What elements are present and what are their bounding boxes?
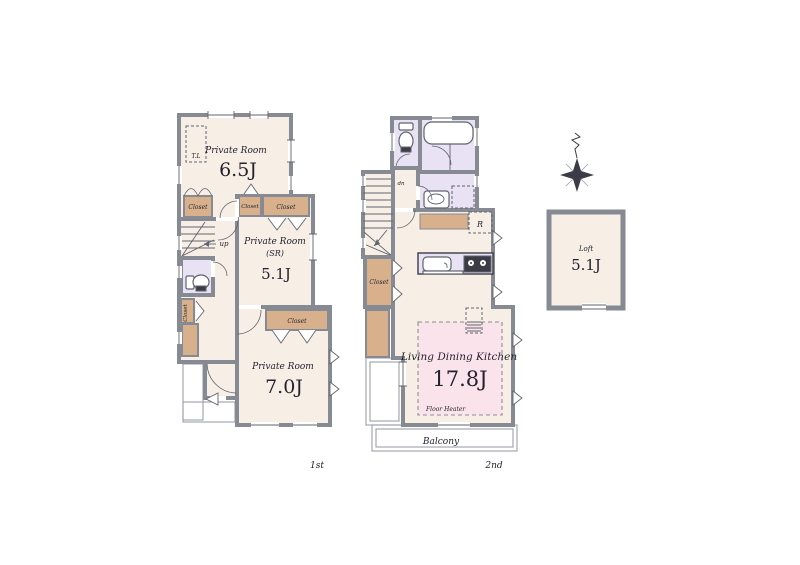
room-7-0j-label: Private Room bbox=[251, 362, 314, 372]
burner-dot bbox=[470, 262, 472, 264]
door-gap bbox=[216, 217, 238, 221]
casement-window-icon bbox=[513, 333, 522, 347]
loft: Loft 5.1J bbox=[549, 212, 623, 312]
door-gap bbox=[239, 305, 261, 309]
stove-icon bbox=[464, 256, 491, 272]
loft-opening bbox=[582, 303, 606, 312]
toilet-door-gap bbox=[211, 261, 215, 277]
balcony-label: Balcony bbox=[422, 437, 460, 447]
refrigerator-label: R bbox=[476, 220, 483, 229]
door-gap bbox=[416, 186, 420, 200]
porch-step bbox=[183, 402, 235, 422]
room-5-1j-label: Private Room bbox=[243, 237, 306, 247]
counter-strip bbox=[423, 271, 463, 274]
balcony-inner bbox=[370, 362, 399, 421]
toilet-tank-icon bbox=[399, 123, 413, 130]
floor-2: Closet dn R Living Dining Kitchen 17.8J … bbox=[360, 115, 522, 471]
casement-window-icon bbox=[493, 285, 502, 299]
room-5-1j-size: 5.1J bbox=[261, 265, 291, 283]
north-compass-icon bbox=[560, 133, 594, 192]
loft-size: 5.1J bbox=[571, 256, 601, 274]
storage-2f bbox=[366, 310, 389, 357]
casement-window-icon bbox=[330, 350, 339, 364]
closet-label: Closet bbox=[183, 303, 189, 321]
bathtub-icon bbox=[424, 122, 473, 144]
closet-label: Closet bbox=[287, 318, 307, 325]
tall-locker-label: T.L bbox=[191, 153, 200, 160]
door-gap bbox=[235, 199, 239, 217]
casement-window-icon bbox=[513, 391, 522, 405]
floor-plan-svg: Private Room 6.5J T.L Closet Closet Clos… bbox=[0, 0, 800, 565]
burner-dot bbox=[482, 262, 484, 264]
floor-heater-label: Floor Heater bbox=[425, 406, 466, 413]
room-6-5j-size: 6.5J bbox=[219, 159, 257, 181]
closet-label: Closet bbox=[276, 204, 296, 211]
porch-outline bbox=[183, 364, 203, 420]
floor-1-caption: 1st bbox=[310, 461, 324, 471]
floor-plan-page: Private Room 6.5J T.L Closet Closet Clos… bbox=[0, 0, 800, 565]
door-gap bbox=[395, 208, 413, 212]
ldk-size: 17.8J bbox=[432, 367, 487, 391]
kitchen-back-counter bbox=[420, 214, 468, 229]
stairs-down-label: dn bbox=[397, 181, 405, 187]
loft-label: Loft bbox=[578, 245, 593, 253]
shoe-cabinet bbox=[182, 324, 198, 356]
floor-2-caption: 2nd bbox=[484, 461, 503, 471]
balcony-outline bbox=[366, 358, 403, 425]
room-6-5j-label: Private Room bbox=[204, 146, 267, 156]
room-5-1j-sub: (SR) bbox=[266, 249, 284, 258]
closet-label: Closet bbox=[369, 279, 389, 286]
hallway-2f bbox=[393, 168, 418, 210]
casement-window-icon bbox=[330, 382, 339, 396]
closet-label: Closet bbox=[188, 204, 208, 211]
ldk-label: Living Dining Kitchen bbox=[400, 351, 517, 363]
casement-window-icon bbox=[493, 231, 502, 245]
closet-label: Closet bbox=[241, 204, 259, 210]
toilet-seat-icon bbox=[401, 147, 411, 152]
toilet-seat-icon bbox=[196, 286, 206, 291]
room-7-0j-size: 7.0J bbox=[265, 376, 303, 398]
stairs-up-label: up bbox=[220, 240, 230, 248]
floor-1: Private Room 6.5J T.L Closet Closet Clos… bbox=[176, 111, 339, 471]
